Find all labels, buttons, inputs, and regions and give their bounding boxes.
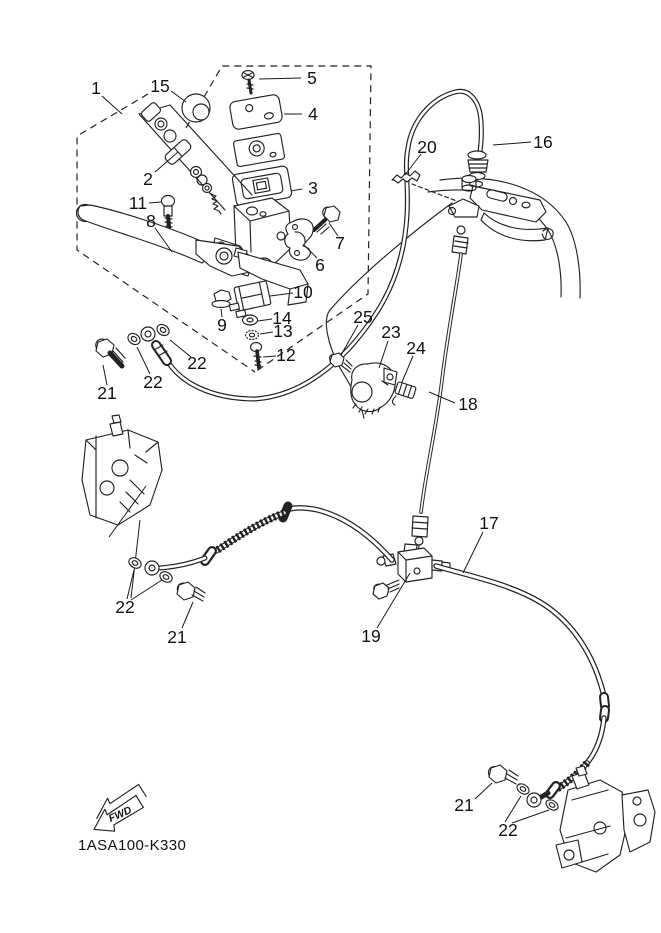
part-code: 1ASA100-K330 <box>78 837 186 854</box>
left-brake-hose <box>145 506 392 575</box>
callout-2: 2 <box>143 169 153 189</box>
callout-11: 11 <box>129 193 147 213</box>
brake-switch-10 <box>226 281 272 319</box>
callout-12: 12 <box>276 345 295 365</box>
callout-15: 15 <box>150 76 169 96</box>
callout-10: 10 <box>293 282 313 302</box>
master-cylinder-exploded <box>77 71 341 369</box>
hose-eyelet <box>145 561 159 575</box>
callouts: 1 15 5 4 2 3 11 8 7 6 10 14 13 9 12 22 2… <box>91 68 553 840</box>
washer-13 <box>246 331 259 340</box>
callout-25: 25 <box>353 307 372 327</box>
callout-22-mc-b: 22 <box>143 372 162 392</box>
nut-9 <box>212 290 231 308</box>
callout-1: 1 <box>91 78 101 98</box>
screw-5 <box>242 71 254 94</box>
bolt-11 <box>162 196 175 228</box>
callout-16: 16 <box>533 132 552 152</box>
reservoir-cap-4 <box>229 94 283 130</box>
callout-22-mc-a: 22 <box>187 353 206 373</box>
diaphragm-plate <box>233 133 285 167</box>
callout-20: 20 <box>417 137 437 157</box>
callout-18: 18 <box>458 394 477 414</box>
callout-9: 9 <box>217 315 227 335</box>
parts-diagram: FWD 1 15 5 4 <box>0 0 661 933</box>
callout-21-right: 21 <box>454 795 473 815</box>
sensor-23 <box>351 363 397 414</box>
washer-14 <box>243 315 258 325</box>
callout-3: 3 <box>308 178 318 198</box>
cap-nut <box>462 176 476 183</box>
brake-pipe-18 <box>412 226 468 556</box>
callout-22-left: 22 <box>115 597 134 617</box>
bushing-15 <box>182 94 210 122</box>
callout-19: 19 <box>361 626 380 646</box>
hose-joint <box>377 544 450 582</box>
callout-22-right: 22 <box>498 820 517 840</box>
callout-23: 23 <box>381 322 400 342</box>
callout-5: 5 <box>307 68 317 88</box>
callout-21-left: 21 <box>167 627 186 647</box>
hose-eyelet <box>527 793 541 807</box>
fwd-arrow: FWD <box>85 784 154 839</box>
callout-21-mc: 21 <box>97 383 116 403</box>
callout-6: 6 <box>315 255 325 275</box>
callout-7: 7 <box>335 233 345 253</box>
bolt-7 <box>314 204 340 234</box>
connector-24 <box>392 382 416 405</box>
screw-12 <box>251 343 262 369</box>
callout-8: 8 <box>146 211 156 231</box>
clip-20 <box>392 171 462 203</box>
clamp-6 <box>285 219 313 260</box>
hose-eyelet <box>141 327 155 341</box>
callout-17: 17 <box>479 513 498 533</box>
callout-13: 13 <box>273 321 292 341</box>
diagram-canvas: FWD 1 15 5 4 <box>0 0 661 933</box>
callout-24: 24 <box>406 338 426 358</box>
bolt-25 <box>327 352 352 372</box>
bolt-19 <box>372 580 399 599</box>
callout-4: 4 <box>308 104 318 124</box>
